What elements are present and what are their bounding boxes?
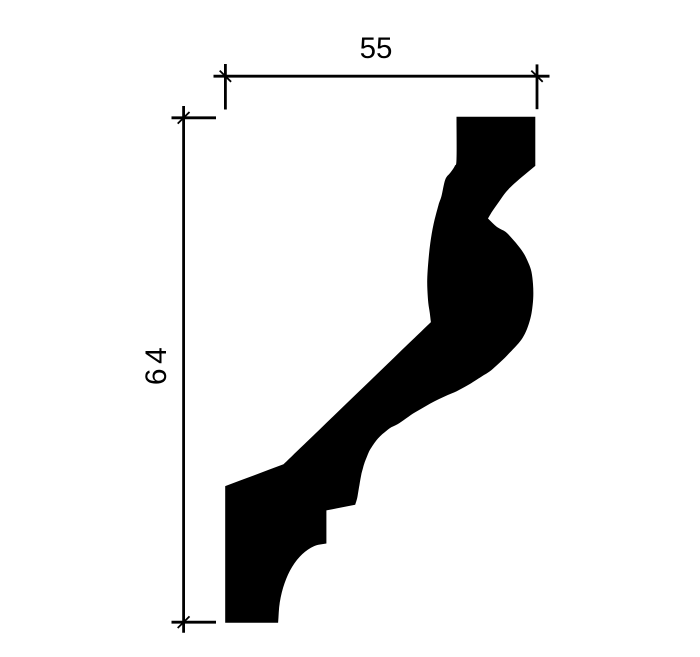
svg-text:64: 64 bbox=[140, 343, 173, 385]
svg-text:55: 55 bbox=[360, 32, 393, 65]
